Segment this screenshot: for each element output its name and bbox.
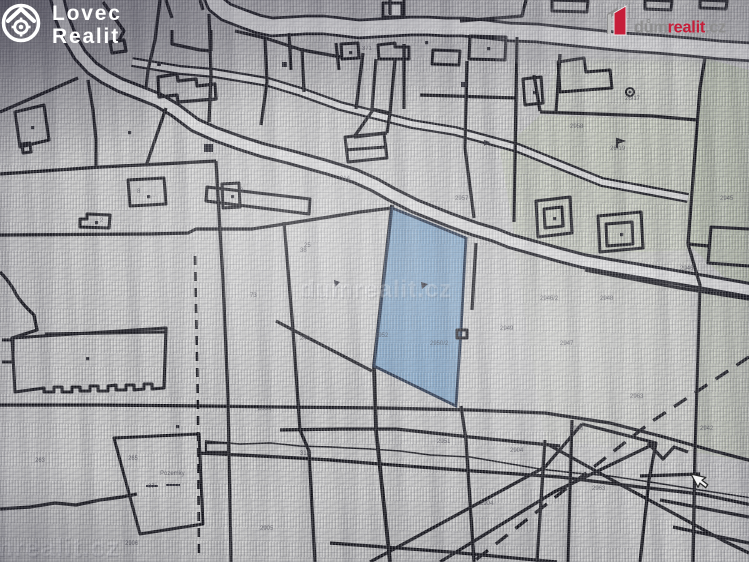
svg-text:důmrealit.cz: důmrealit.cz bbox=[634, 19, 726, 37]
svg-text:Realit: Realit bbox=[52, 25, 120, 48]
svg-text:Lovec: Lovec bbox=[52, 2, 122, 25]
